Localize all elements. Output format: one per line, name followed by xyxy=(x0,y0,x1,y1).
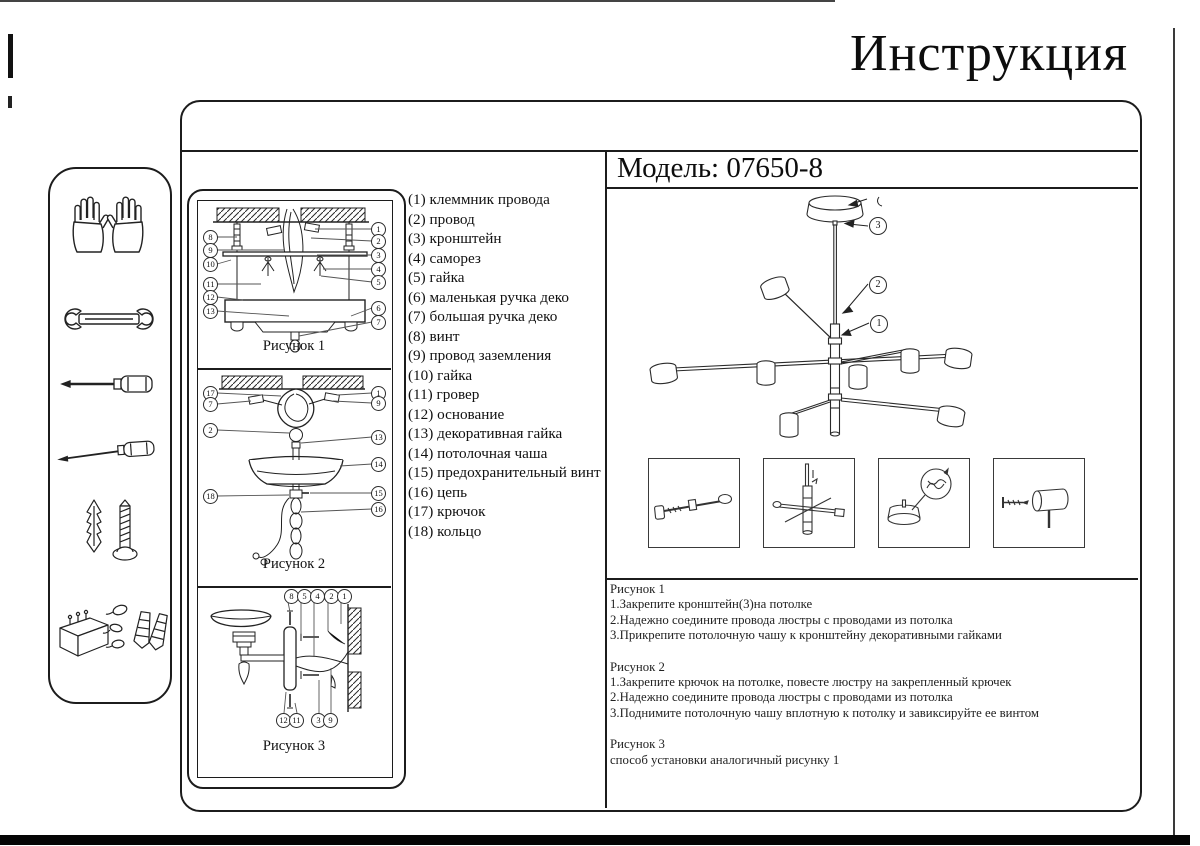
parts-item: (9) провод заземления xyxy=(408,346,604,366)
parts-item: (11) гровер xyxy=(408,385,604,405)
parts-item: (12) основание xyxy=(408,405,604,425)
parts-item: (4) саморез xyxy=(408,249,604,269)
fig2-callout: 18 xyxy=(203,489,218,504)
diagram-callout: 1 xyxy=(870,315,888,333)
instruction-heading: Рисунок 1 xyxy=(610,582,1138,597)
page-title: Инструкция xyxy=(850,24,1128,83)
figures-divider-1 xyxy=(198,368,391,370)
fig2-callout: 2 xyxy=(203,423,218,438)
instruction-step: способ установки аналогичный рисунку 1 xyxy=(610,753,1138,768)
parts-item: (7) большая ручка деко xyxy=(408,307,604,327)
instruction-step: 3.Прикрепите потолочную чашу к кронштейн… xyxy=(610,628,1138,643)
parts-list: (1) клеммник провода (2) провод (3) крон… xyxy=(408,190,604,541)
fig2-callout: 14 xyxy=(371,457,386,472)
parts-item: (13) декоративная гайка xyxy=(408,424,604,444)
wall-plug-and-screw-icon xyxy=(80,498,144,572)
instruction-heading: Рисунок 3 xyxy=(610,737,1138,752)
parts-item: (2) провод xyxy=(408,210,604,230)
parts-item: (16) цепь xyxy=(408,483,604,503)
parts-item: (17) крючок xyxy=(408,502,604,522)
fig3-callout: 1 xyxy=(337,589,352,604)
flat-screwdriver-icon xyxy=(58,370,158,398)
scan-edge-right xyxy=(1173,28,1175,836)
figure2-caption: Рисунок 2 xyxy=(197,556,391,573)
step4-drawing xyxy=(993,458,1083,546)
fig2-callout: 13 xyxy=(371,430,386,445)
chandelier-diagram xyxy=(615,192,1095,450)
fig3-callout: 4 xyxy=(310,589,325,604)
fig2-callout: 15 xyxy=(371,486,386,501)
parts-item: (3) кронштейн xyxy=(408,229,604,249)
instruction-heading: Рисунок 2 xyxy=(610,660,1138,675)
parts-item: (14) потолочная чаша xyxy=(408,444,604,464)
gloves-icon xyxy=(68,194,148,286)
instruction-step: 1.Закрепите кронштейн(3)на потолке xyxy=(610,597,1138,612)
fig1-callout: 12 xyxy=(203,290,218,305)
fasteners-kit-icon xyxy=(52,598,168,674)
parts-item: (8) винт xyxy=(408,327,604,347)
diagram-callout: 3 xyxy=(869,217,887,235)
scan-edge-top xyxy=(0,0,835,2)
instructions-divider xyxy=(607,578,1138,580)
figure2-drawing xyxy=(197,372,391,572)
fig1-callout: 2 xyxy=(371,234,386,249)
parts-item: (1) клеммник провода xyxy=(408,190,604,210)
instruction-step: 1.Закрепите крючок на потолке, повесте л… xyxy=(610,675,1138,690)
wrench-icon xyxy=(62,300,156,338)
fig2-callout: 7 xyxy=(203,397,218,412)
fig1-callout: 10 xyxy=(203,257,218,272)
instructions-block: Рисунок 1 1.Закрепите кронштейн(3)на пот… xyxy=(610,582,1138,768)
model-underline xyxy=(607,187,1138,189)
parts-item: (6) маленькая ручка деко xyxy=(408,288,604,308)
fig1-callout: 6 xyxy=(371,301,386,316)
parts-item: (15) предохранительный винт xyxy=(408,463,604,483)
scan-edge-bottom xyxy=(0,835,1190,845)
instruction-step: 2.Надежно соедините провода люстры с про… xyxy=(610,613,1138,628)
model-label: Модель: 07650-8 xyxy=(617,152,823,185)
scan-mark-left-2 xyxy=(8,96,12,108)
fig2-callout: 9 xyxy=(371,396,386,411)
fig2-callout: 16 xyxy=(371,502,386,517)
diagram-callout: 2 xyxy=(869,276,887,294)
fig1-callout: 5 xyxy=(371,275,386,290)
parts-item: (18) кольцо xyxy=(408,522,604,542)
fig1-callout: 9 xyxy=(203,243,218,258)
instruction-step: 3.Поднимите потолочную чашу вплотную к п… xyxy=(610,706,1138,721)
instruction-step: 2.Надежно соедините провода люстры с про… xyxy=(610,690,1138,705)
fig1-callout: 7 xyxy=(371,315,386,330)
frame-vertical-divider xyxy=(605,150,607,808)
fig3-callout: 9 xyxy=(323,713,338,728)
figure1-caption: Рисунок 1 xyxy=(197,338,391,355)
fig3-callout: 11 xyxy=(289,713,304,728)
parts-item: (10) гайка xyxy=(408,366,604,386)
figure3-caption: Рисунок 3 xyxy=(197,738,391,755)
fig1-callout: 3 xyxy=(371,248,386,263)
scan-mark-left-1 xyxy=(8,34,13,78)
step2-drawing xyxy=(763,458,853,546)
step1-drawing xyxy=(648,458,738,546)
thin-screwdriver-icon xyxy=(56,434,160,468)
step3-drawing xyxy=(878,458,968,546)
parts-item: (5) гайка xyxy=(408,268,604,288)
instruction-sheet: Инструкция xyxy=(0,0,1200,846)
fig1-callout: 13 xyxy=(203,304,218,319)
